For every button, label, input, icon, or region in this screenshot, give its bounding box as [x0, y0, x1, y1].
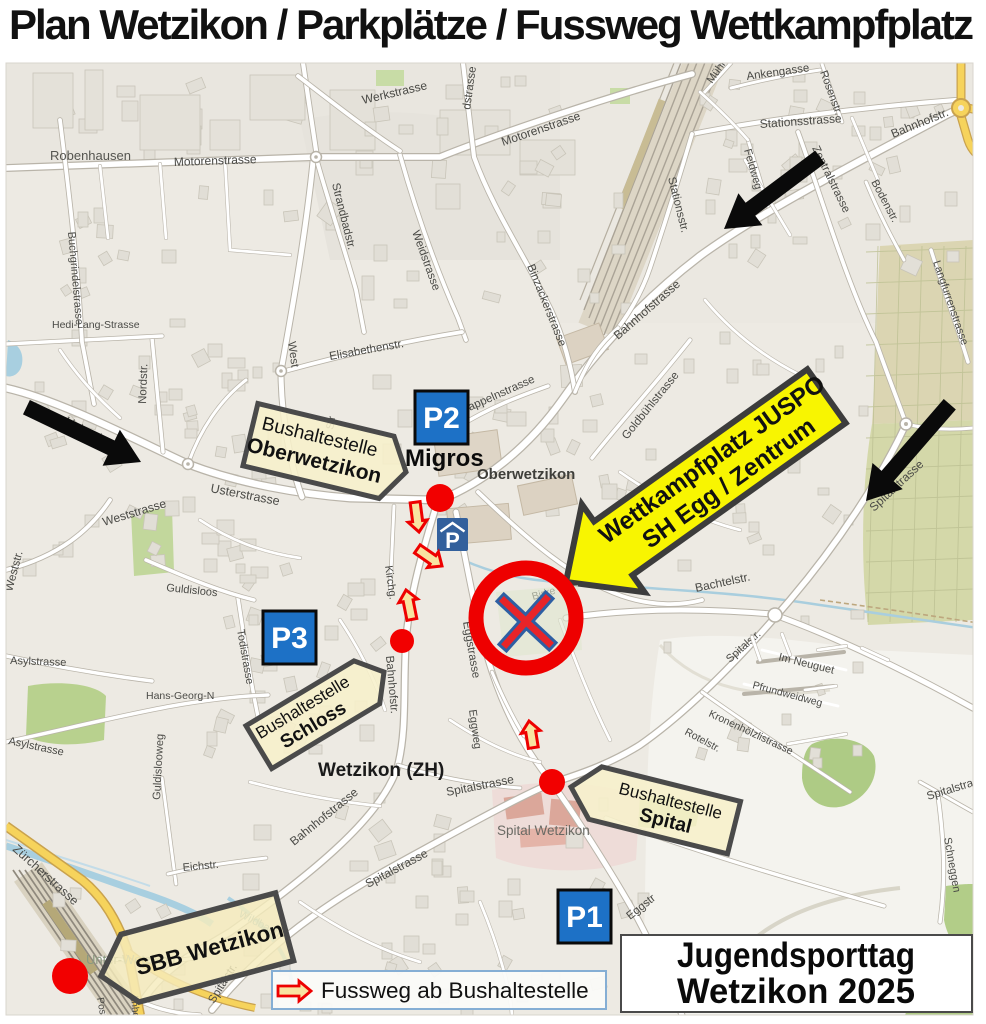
svg-text:P1: P1 — [566, 901, 603, 934]
svg-text:Spital Wetzikon: Spital Wetzikon — [497, 823, 590, 838]
svg-text:Jugendsporttag: Jugendsporttag — [677, 936, 915, 975]
svg-text:Asylstrasse: Asylstrasse — [10, 655, 67, 669]
svg-text:Wetzikon 2025: Wetzikon 2025 — [677, 972, 915, 1011]
svg-text:Hans-Georg-N: Hans-Georg-N — [146, 690, 214, 702]
svg-text:P2: P2 — [423, 402, 460, 435]
svg-text:Migros: Migros — [405, 445, 484, 472]
svg-text:Oberwetzikon: Oberwetzikon — [477, 466, 575, 483]
svg-text:Hedi-Lang-Strasse: Hedi-Lang-Strasse — [52, 319, 140, 331]
svg-text:Motorenstrasse: Motorenstrasse — [174, 152, 257, 169]
svg-text:P3: P3 — [271, 622, 308, 655]
svg-text:Fussweg ab Bushaltestelle: Fussweg ab Bushaltestelle — [321, 978, 589, 1003]
svg-text:Robenhausen: Robenhausen — [50, 148, 131, 163]
svg-text:P: P — [445, 528, 460, 553]
svg-text:Nordstr.: Nordstr. — [137, 363, 150, 404]
svg-text:Wetzikon (ZH): Wetzikon (ZH) — [318, 760, 444, 781]
